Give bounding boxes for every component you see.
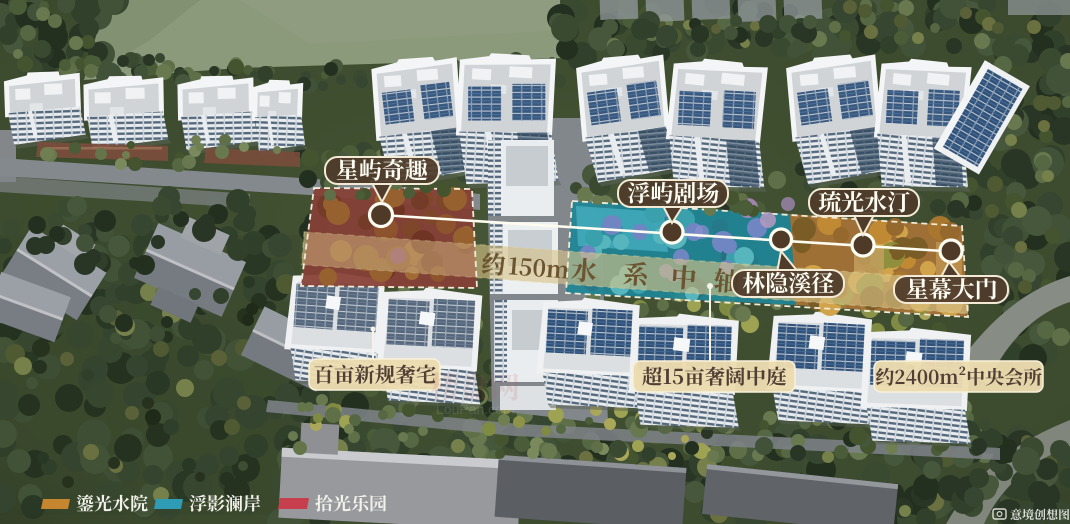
svg-text:LouPan.com: LouPan.com <box>436 401 515 417</box>
